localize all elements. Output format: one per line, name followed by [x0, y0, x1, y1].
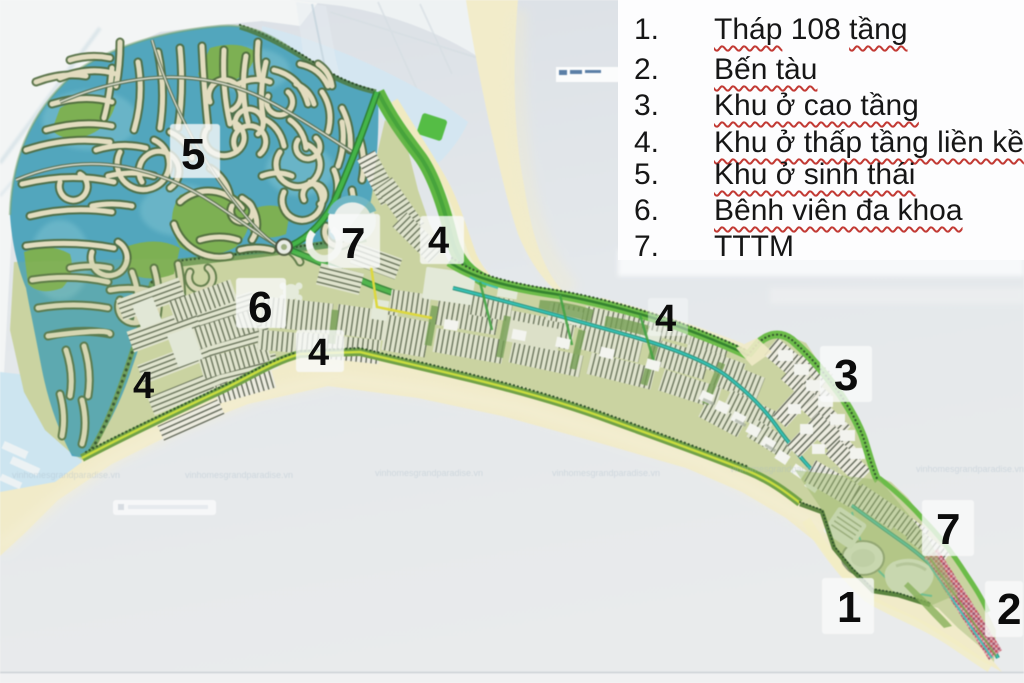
svg-text:vinhomesgrandparadise.vn: vinhomesgrandparadise.vn — [12, 470, 120, 480]
svg-text:vinhomesgrandparadise.vn: vinhomesgrandparadise.vn — [730, 464, 838, 474]
svg-text:vinhomesgrandparadise.vn: vinhomesgrandparadise.vn — [185, 470, 293, 480]
svg-text:vinhomesgrandparadise.vn: vinhomesgrandparadise.vn — [375, 468, 483, 478]
svg-text:vinhomesgrandparadise.vn: vinhomesgrandparadise.vn — [552, 468, 660, 478]
svg-text:vinhomesgrandparadise.vn: vinhomesgrandparadise.vn — [916, 464, 1024, 474]
